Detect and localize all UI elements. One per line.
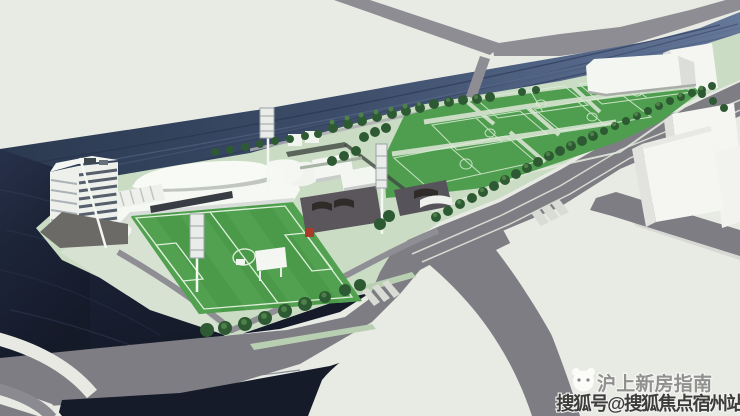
- svg-text:沪上新房指南: 沪上新房指南: [597, 372, 712, 395]
- svg-text:搜狐号@搜狐焦点宿州站: 搜狐号@搜狐焦点宿州站: [556, 393, 740, 414]
